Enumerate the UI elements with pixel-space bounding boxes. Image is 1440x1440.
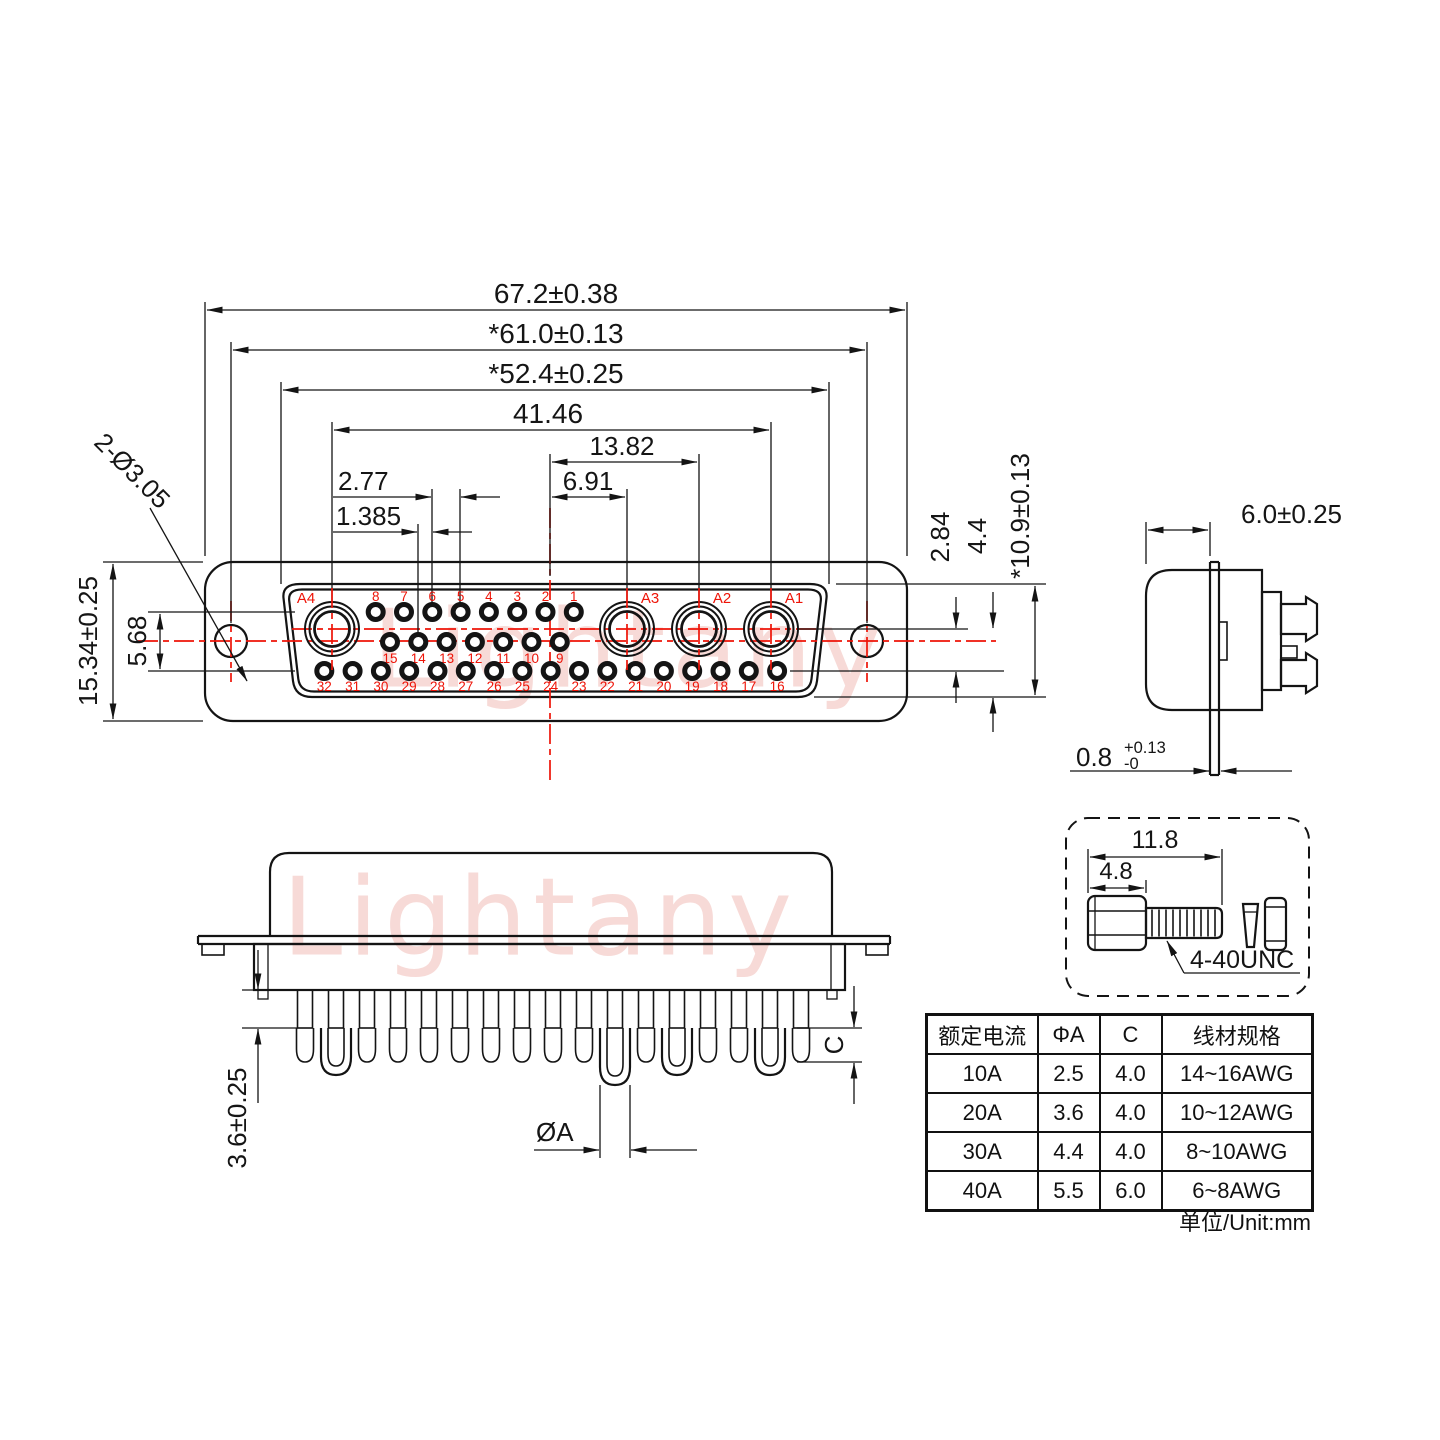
side-latch bbox=[1219, 622, 1227, 660]
pin-label: 5 bbox=[457, 589, 465, 604]
side-extension-lines bbox=[1146, 522, 1210, 564]
pin-hole bbox=[628, 664, 643, 679]
watermark-bottom: Lightany bbox=[282, 856, 798, 981]
dim-center-to-a3: 6.91 bbox=[563, 466, 614, 496]
crimp-barrel bbox=[452, 1028, 469, 1062]
pin-hole bbox=[368, 605, 383, 620]
terminal-tooth bbox=[639, 990, 654, 1028]
spec-col-header: 线材规格 bbox=[1162, 1015, 1313, 1055]
terminal-tooth bbox=[608, 990, 623, 1028]
terminal-field bbox=[297, 990, 810, 1085]
spec-col-header: 额定电流 bbox=[927, 1015, 1038, 1055]
pin-hole bbox=[430, 664, 445, 679]
spec-cell: 30A bbox=[927, 1132, 1038, 1171]
pin-hole bbox=[317, 664, 332, 679]
side-view: 6.0±0.25 0.8 +0.13 -0 bbox=[1070, 499, 1342, 775]
spec-header-row: 额定电流 ΦA C 线材规格 bbox=[927, 1015, 1313, 1055]
side-flange bbox=[1210, 562, 1219, 775]
pin-part bbox=[1265, 898, 1286, 950]
crimp-barrel bbox=[793, 1028, 810, 1062]
pin-label: 2 bbox=[542, 589, 550, 604]
pin-label: 20 bbox=[656, 679, 671, 694]
spec-table: 额定电流 ΦA C 线材规格 10A 2.5 4.0 14~16AWG 20A … bbox=[925, 1013, 1314, 1212]
pin-label: 21 bbox=[628, 679, 643, 694]
stub-left bbox=[258, 990, 268, 999]
spec-cell: 3.6 bbox=[1038, 1093, 1100, 1132]
pin-label: A2 bbox=[713, 590, 731, 607]
flange-tab-right bbox=[866, 944, 888, 955]
spec-cell: 20A bbox=[927, 1093, 1038, 1132]
pin-label: 7 bbox=[400, 589, 408, 604]
pin-label: 4 bbox=[485, 589, 493, 604]
dim-total-length: 11.8 bbox=[1132, 826, 1179, 854]
pin-label: 27 bbox=[458, 679, 473, 694]
dim-overall-width: 67.2±0.38 bbox=[494, 278, 618, 309]
wedge-part bbox=[1243, 904, 1258, 947]
crimp-barrel bbox=[421, 1028, 438, 1062]
pin-hole bbox=[373, 664, 388, 679]
pin-hole bbox=[524, 635, 539, 650]
crimp-barrel bbox=[576, 1028, 593, 1062]
pin-hole bbox=[515, 664, 530, 679]
power-barrel-outer bbox=[662, 1028, 692, 1075]
pin-label: 18 bbox=[713, 679, 728, 694]
pin-label: 29 bbox=[402, 679, 417, 694]
pin-label: 19 bbox=[685, 679, 700, 694]
pin-label: 22 bbox=[600, 679, 615, 694]
spec-cell: 40A bbox=[927, 1171, 1038, 1211]
terminal-tooth bbox=[670, 990, 685, 1028]
pin-label: 8 bbox=[372, 589, 380, 604]
terminal-tooth bbox=[577, 990, 592, 1028]
dim-plate-height: 15.34±0.25 bbox=[73, 576, 103, 706]
power-barrel-outer bbox=[755, 1028, 785, 1075]
pin-label: 32 bbox=[317, 679, 332, 694]
terminal-tooth bbox=[546, 990, 561, 1028]
dim-center-to-a2: 13.82 bbox=[589, 431, 654, 461]
pin-label: A1 bbox=[785, 590, 803, 607]
dim-row-span: 5.68 bbox=[122, 616, 152, 667]
pin-hole bbox=[543, 664, 558, 679]
pin-hole bbox=[552, 635, 567, 650]
power-barrel-inner bbox=[669, 1028, 685, 1066]
pin-label: 3 bbox=[513, 589, 521, 604]
pin-hole bbox=[458, 664, 473, 679]
flange-tab-left bbox=[202, 944, 224, 955]
pin-hole bbox=[487, 664, 502, 679]
side-body bbox=[1146, 570, 1262, 710]
drawing-page: Lightany Lightany bbox=[0, 0, 1440, 1440]
pin-hole bbox=[741, 664, 756, 679]
terminal-tooth bbox=[732, 990, 747, 1028]
pin-hole bbox=[656, 664, 671, 679]
pin-hole bbox=[481, 605, 496, 620]
pin-hole bbox=[572, 664, 587, 679]
pin-hole bbox=[685, 664, 700, 679]
spec-cell: 4.0 bbox=[1100, 1093, 1162, 1132]
dim-flange-thickness: 0.8 bbox=[1076, 742, 1112, 772]
terminal-tooth bbox=[298, 990, 313, 1028]
crimp-barrel bbox=[483, 1028, 500, 1062]
table-row: 30A 4.4 4.0 8~10AWG bbox=[927, 1132, 1313, 1171]
pin-hole bbox=[402, 664, 417, 679]
terminal-tooth bbox=[453, 990, 468, 1028]
pin-label: A3 bbox=[641, 590, 659, 607]
pin-hole bbox=[496, 635, 511, 650]
spec-cell: 8~10AWG bbox=[1162, 1132, 1313, 1171]
pin-hole bbox=[411, 635, 426, 650]
dim-hole-spacing: *61.0±0.13 bbox=[488, 318, 623, 349]
terminal-tooth bbox=[701, 990, 716, 1028]
crimp-barrel bbox=[390, 1028, 407, 1062]
power-barrel-outer bbox=[321, 1028, 351, 1075]
dim-half-pitch: 1.385 bbox=[336, 501, 401, 531]
spec-cell: 5.5 bbox=[1038, 1171, 1100, 1211]
screw-shaft bbox=[1146, 908, 1222, 938]
spec-cell: 2.5 bbox=[1038, 1054, 1100, 1093]
dim-mount-hole: 2-Ø3.05 bbox=[89, 427, 177, 515]
terminal-tooth bbox=[360, 990, 375, 1028]
terminal-tooth bbox=[515, 990, 530, 1028]
stub-right bbox=[827, 990, 837, 999]
dim-tail-length: 3.6±0.25 bbox=[222, 1067, 252, 1168]
terminal-tooth bbox=[794, 990, 809, 1028]
spec-cell: 14~16AWG bbox=[1162, 1054, 1313, 1093]
terminal-tooth bbox=[763, 990, 778, 1028]
pin-label: 6 bbox=[429, 589, 437, 604]
thread-label: 4-40UNC bbox=[1190, 946, 1294, 974]
pin-hole bbox=[566, 605, 581, 620]
dim-dia-a: ØA bbox=[536, 1117, 574, 1147]
side-terminal-lower bbox=[1281, 653, 1317, 693]
pin-label: 17 bbox=[741, 679, 756, 694]
pin-hole bbox=[425, 605, 440, 620]
pin-label: 31 bbox=[345, 679, 360, 694]
terminal-tooth bbox=[422, 990, 437, 1028]
spec-col-header: ΦA bbox=[1038, 1015, 1100, 1055]
power-barrel-inner bbox=[328, 1028, 344, 1066]
pin-label: 23 bbox=[571, 679, 586, 694]
terminal-tooth bbox=[391, 990, 406, 1028]
power-barrel-inner bbox=[607, 1028, 623, 1076]
screw-head bbox=[1088, 896, 1146, 950]
pin-label: 16 bbox=[770, 679, 785, 694]
pin-hole bbox=[345, 664, 360, 679]
pin-hole bbox=[713, 664, 728, 679]
terminal-tooth bbox=[484, 990, 499, 1028]
terminal-tooth bbox=[329, 990, 344, 1028]
dim-head-length: 4.8 bbox=[1099, 858, 1132, 885]
crimp-barrel bbox=[638, 1028, 655, 1062]
dim-tol-minus: -0 bbox=[1124, 755, 1139, 773]
dim-mid-height: 4.4 bbox=[962, 518, 992, 554]
crimp-barrel bbox=[359, 1028, 376, 1062]
dim-shroud-width: *52.4±0.25 bbox=[488, 358, 623, 389]
crimp-barrel bbox=[545, 1028, 562, 1062]
spec-cell: 4.0 bbox=[1100, 1054, 1162, 1093]
crimp-barrel bbox=[700, 1028, 717, 1062]
side-terminal-upper bbox=[1281, 597, 1317, 641]
unit-label: 单位/Unit:mm bbox=[1100, 1205, 1311, 1237]
table-row: 20A 3.6 4.0 10~12AWG bbox=[927, 1093, 1313, 1132]
pin-hole bbox=[510, 605, 525, 620]
pin-label: 25 bbox=[515, 679, 530, 694]
dim-pin-pitch: 2.77 bbox=[338, 466, 389, 496]
table-row: 10A 2.5 4.0 14~16AWG bbox=[927, 1054, 1313, 1093]
pin-hole bbox=[439, 635, 454, 650]
pin-hole bbox=[538, 605, 553, 620]
dim-contact-span: 41.46 bbox=[513, 398, 583, 429]
power-barrel-inner bbox=[762, 1028, 778, 1066]
spec-cell: 4.4 bbox=[1038, 1132, 1100, 1171]
dim-depth: 6.0±0.25 bbox=[1241, 499, 1342, 529]
thread-lines bbox=[1152, 910, 1215, 937]
dim-row-pitch: 2.84 bbox=[925, 512, 955, 563]
spec-cell: 4.0 bbox=[1100, 1132, 1162, 1171]
pin-hole bbox=[383, 635, 398, 650]
pin-label: 24 bbox=[543, 679, 559, 694]
pin-label: 1 bbox=[570, 589, 578, 604]
dim-shroud-height: *10.9±0.13 bbox=[1005, 453, 1035, 579]
pin-hole bbox=[600, 664, 615, 679]
side-insulator bbox=[1262, 592, 1281, 690]
side-terminal-mid bbox=[1281, 646, 1297, 658]
crimp-barrel bbox=[297, 1028, 314, 1062]
pin-label: 30 bbox=[373, 679, 388, 694]
screw-detail: 11.8 4.8 4-40UNC bbox=[1066, 818, 1309, 996]
spec-col-header: C bbox=[1100, 1015, 1162, 1055]
dim-c: C bbox=[819, 1036, 849, 1055]
spec-cell: 10A bbox=[927, 1054, 1038, 1093]
pin-label: 28 bbox=[430, 679, 445, 694]
pin-label: 26 bbox=[487, 679, 502, 694]
pin-hole bbox=[397, 605, 412, 620]
spec-cell: 10~12AWG bbox=[1162, 1093, 1313, 1132]
crimp-barrel bbox=[731, 1028, 748, 1062]
pin-hole bbox=[453, 605, 468, 620]
pin-label: A4 bbox=[297, 590, 315, 607]
crimp-barrel bbox=[514, 1028, 531, 1062]
pin-hole bbox=[467, 635, 482, 650]
